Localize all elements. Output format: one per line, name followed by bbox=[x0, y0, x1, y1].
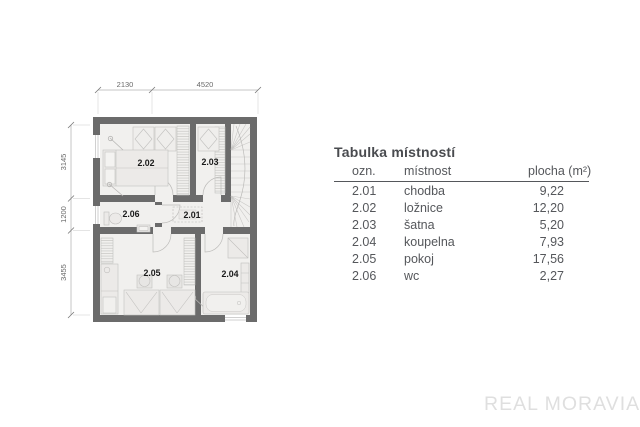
table-row: 2.04koupelna7,93 bbox=[333, 234, 598, 251]
table-cell-plocha: 2,27 bbox=[528, 268, 564, 285]
dim-label-2130: 2130 bbox=[117, 80, 134, 89]
table-row: 2.05pokoj17,56 bbox=[333, 251, 598, 268]
header-divider bbox=[334, 181, 589, 182]
dimension-left: 3145 1200 3455 bbox=[59, 122, 90, 318]
room-table: Tabulka místností ozn. místnost plocha (… bbox=[333, 144, 598, 285]
table-row: 2.02ložnice12,20 bbox=[333, 200, 598, 217]
room-label-205: 2.05 bbox=[143, 268, 160, 278]
column-header-ozn: ozn. bbox=[352, 164, 404, 179]
table-cell-ozn: 2.05 bbox=[352, 251, 404, 268]
floor-plan-drawing: 2.02 2.03 2.06 2.01 2.05 2.04 2130 4520 … bbox=[55, 75, 270, 335]
double-bed bbox=[103, 150, 168, 186]
table-cell-plocha: 17,56 bbox=[528, 251, 564, 268]
table-row: 2.01chodba9,22 bbox=[333, 183, 598, 200]
table-cell-mistnost: pokoj bbox=[404, 251, 528, 268]
table-row: 2.06wc2,27 bbox=[333, 268, 598, 285]
column-header-mistnost: místnost bbox=[404, 164, 528, 179]
table-cell-plocha: 5,20 bbox=[528, 217, 564, 234]
room-table-body: 2.01chodba9,222.02ložnice12,202.03šatna5… bbox=[333, 183, 598, 285]
desk-counter bbox=[101, 264, 118, 314]
table-cell-mistnost: chodba bbox=[404, 183, 528, 200]
washbasin bbox=[137, 225, 150, 232]
room-table-title: Tabulka místností bbox=[334, 144, 598, 160]
room-label-204: 2.04 bbox=[221, 269, 238, 279]
table-cell-plocha: 12,20 bbox=[528, 200, 564, 217]
table-cell-mistnost: wc bbox=[404, 268, 528, 285]
table-cell-plocha: 7,93 bbox=[528, 234, 564, 251]
dim-label-4520: 4520 bbox=[197, 80, 214, 89]
table-cell-ozn: 2.04 bbox=[352, 234, 404, 251]
bath-shelf bbox=[241, 263, 249, 293]
room-label-206: 2.06 bbox=[122, 209, 139, 219]
watermark: REAL MORAVIA bbox=[484, 393, 640, 416]
page: { "floorplan": { "room_labels": { "r201"… bbox=[0, 0, 640, 427]
dimension-top: 2130 4520 bbox=[95, 80, 261, 114]
shower bbox=[228, 238, 248, 258]
toilet bbox=[104, 212, 122, 225]
dim-label-3455: 3455 bbox=[59, 264, 68, 281]
wardrobe-boxes bbox=[133, 127, 219, 151]
dim-label-1200: 1200 bbox=[59, 206, 68, 223]
floor-plan: 2.02 2.03 2.06 2.01 2.05 2.04 2130 4520 … bbox=[55, 75, 270, 335]
room-table-header: ozn. místnost plocha (m²) bbox=[333, 164, 598, 179]
bathtub bbox=[203, 292, 249, 314]
table-cell-mistnost: koupelna bbox=[404, 234, 528, 251]
table-cell-ozn: 2.01 bbox=[352, 183, 404, 200]
table-cell-ozn: 2.06 bbox=[352, 268, 404, 285]
table-cell-mistnost: ložnice bbox=[404, 200, 528, 217]
table-cell-plocha: 9,22 bbox=[528, 183, 564, 200]
dim-label-3145: 3145 bbox=[59, 154, 68, 171]
room-label-202: 2.02 bbox=[137, 158, 154, 168]
table-cell-ozn: 2.02 bbox=[352, 200, 404, 217]
table-cell-mistnost: šatna bbox=[404, 217, 528, 234]
room-label-203: 2.03 bbox=[201, 157, 218, 167]
room-label-201: 2.01 bbox=[183, 210, 200, 220]
table-cell-ozn: 2.03 bbox=[352, 217, 404, 234]
column-header-plocha: plocha (m²) bbox=[528, 164, 590, 179]
table-row: 2.03šatna5,20 bbox=[333, 217, 598, 234]
